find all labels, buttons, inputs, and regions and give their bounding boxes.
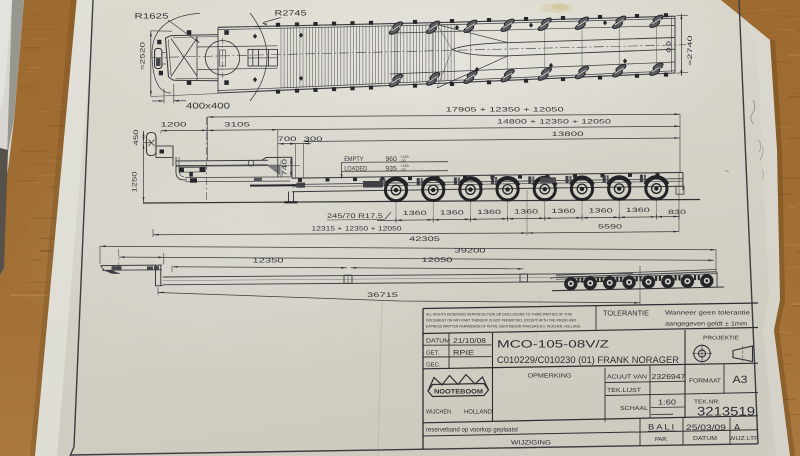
svg-text:BALI: BALI <box>648 422 676 431</box>
svg-text:400x400: 400x400 <box>186 101 230 111</box>
svg-text:≈2740: ≈2740 <box>687 35 694 66</box>
svg-text:R2745: R2745 <box>275 8 307 17</box>
svg-text:TEK.LIJST: TEK.LIJST <box>607 387 641 394</box>
svg-text:ACUUT VAN: ACUUT VAN <box>607 374 647 381</box>
svg-text:LOADED: LOADED <box>344 165 367 172</box>
svg-text:-30: -30 <box>400 159 405 163</box>
svg-text:≈2520: ≈2520 <box>140 41 147 70</box>
svg-text:PAR.: PAR. <box>655 437 668 443</box>
svg-text:245/70 R17.5: 245/70 R17.5 <box>327 213 383 220</box>
svg-text:935: 935 <box>385 165 397 172</box>
svg-text:1360: 1360 <box>477 209 502 216</box>
svg-text:EMPTY: EMPTY <box>344 156 364 163</box>
svg-text:1360: 1360 <box>589 207 614 214</box>
svg-text:MCO-105-08V/Z: MCO-105-08V/Z <box>497 339 610 351</box>
svg-text:1250: 1250 <box>132 171 139 193</box>
svg-text:39200: 39200 <box>455 247 487 254</box>
svg-text:OPMERKING: OPMERKING <box>528 373 572 380</box>
svg-text:Wanneer geen tolerantie: Wanneer geen tolerantie <box>665 310 751 317</box>
svg-text:reserveband op voorkop geplaat: reserveband op voorkop geplaatst <box>426 427 518 434</box>
svg-text:WIJCHEN: WIJCHEN <box>426 409 451 416</box>
svg-text:RPIE: RPIE <box>453 348 474 357</box>
svg-text:14800 + 12350 + 12050: 14800 + 12350 + 12050 <box>497 118 612 125</box>
svg-text:830: 830 <box>668 209 687 216</box>
svg-text:450: 450 <box>133 129 140 146</box>
svg-text:13800: 13800 <box>552 131 585 138</box>
svg-text:17905 + 12350 + 12050: 17905 + 12350 + 12050 <box>446 107 565 114</box>
svg-text:aangegeven geldt ± 1mm: aangegeven geldt ± 1mm <box>665 321 747 328</box>
svg-text:12315 + 12350 + 12050: 12315 + 12350 + 12050 <box>312 226 403 233</box>
svg-text:36715: 36715 <box>367 292 399 299</box>
svg-text:740: 740 <box>281 158 288 176</box>
svg-text:960: 960 <box>385 156 397 163</box>
svg-text:WIJZIGING: WIJZIGING <box>511 440 551 447</box>
svg-text:PROJEKTIE: PROJEKTIE <box>703 336 739 342</box>
svg-text:12050: 12050 <box>422 257 454 264</box>
svg-text:1360: 1360 <box>551 208 576 215</box>
svg-text:GEC.: GEC. <box>426 362 441 369</box>
svg-text:R1625: R1625 <box>135 12 169 21</box>
svg-text:EXPRESS WRITTEN PERMISSION OF: EXPRESS WRITTEN PERMISSION OF ROYAL NOOT… <box>426 324 581 328</box>
svg-text:21/10/08: 21/10/08 <box>453 337 486 345</box>
svg-text:3105: 3105 <box>224 121 251 128</box>
svg-text:DOCUMENT OR ANY PART THEREOF I: DOCUMENT OR ANY PART THEREOF IS NOT PERM… <box>426 318 576 322</box>
svg-text:A3: A3 <box>733 374 748 386</box>
svg-text:1360: 1360 <box>514 208 539 215</box>
svg-text:SCHAAL: SCHAAL <box>620 405 649 412</box>
svg-text:-30: -30 <box>400 168 405 172</box>
svg-text:300: 300 <box>304 136 324 143</box>
svg-text:GET.: GET. <box>426 350 440 357</box>
svg-text:2326947: 2326947 <box>652 372 686 381</box>
svg-text:NOOTEBOOM: NOOTEBOOM <box>434 389 483 396</box>
svg-text:HOLLAND: HOLLAND <box>464 408 493 415</box>
svg-text:25/03/09: 25/03/09 <box>686 423 726 432</box>
svg-text:WIJZ.LTR: WIJZ.LTR <box>729 436 759 442</box>
svg-text:700: 700 <box>278 136 298 143</box>
svg-text:5590: 5590 <box>598 223 623 230</box>
svg-text:42305: 42305 <box>409 236 441 243</box>
svg-text:C010229/C010230 (01) FRANK NOR: C010229/C010230 (01) FRANK NORAGER <box>497 355 679 366</box>
svg-text:1360: 1360 <box>626 207 651 214</box>
svg-text:TOLERANTIE: TOLERANTIE <box>603 309 649 318</box>
svg-text:1360: 1360 <box>440 209 465 216</box>
svg-text:DATUM: DATUM <box>426 338 450 345</box>
svg-text:FORMAAT: FORMAAT <box>689 378 721 385</box>
svg-text:3213519: 3213519 <box>697 405 755 419</box>
svg-text:A: A <box>734 423 741 434</box>
svg-text:1:60: 1:60 <box>658 398 676 407</box>
svg-text:12350: 12350 <box>253 257 285 264</box>
svg-text:DATUM: DATUM <box>693 436 717 442</box>
svg-text:1360: 1360 <box>403 210 428 217</box>
svg-text:1200: 1200 <box>161 122 188 129</box>
svg-text:ALL RIGHTS RESERVED REPRODUCTI: ALL RIGHTS RESERVED REPRODUCTION OR DISC… <box>426 312 573 316</box>
